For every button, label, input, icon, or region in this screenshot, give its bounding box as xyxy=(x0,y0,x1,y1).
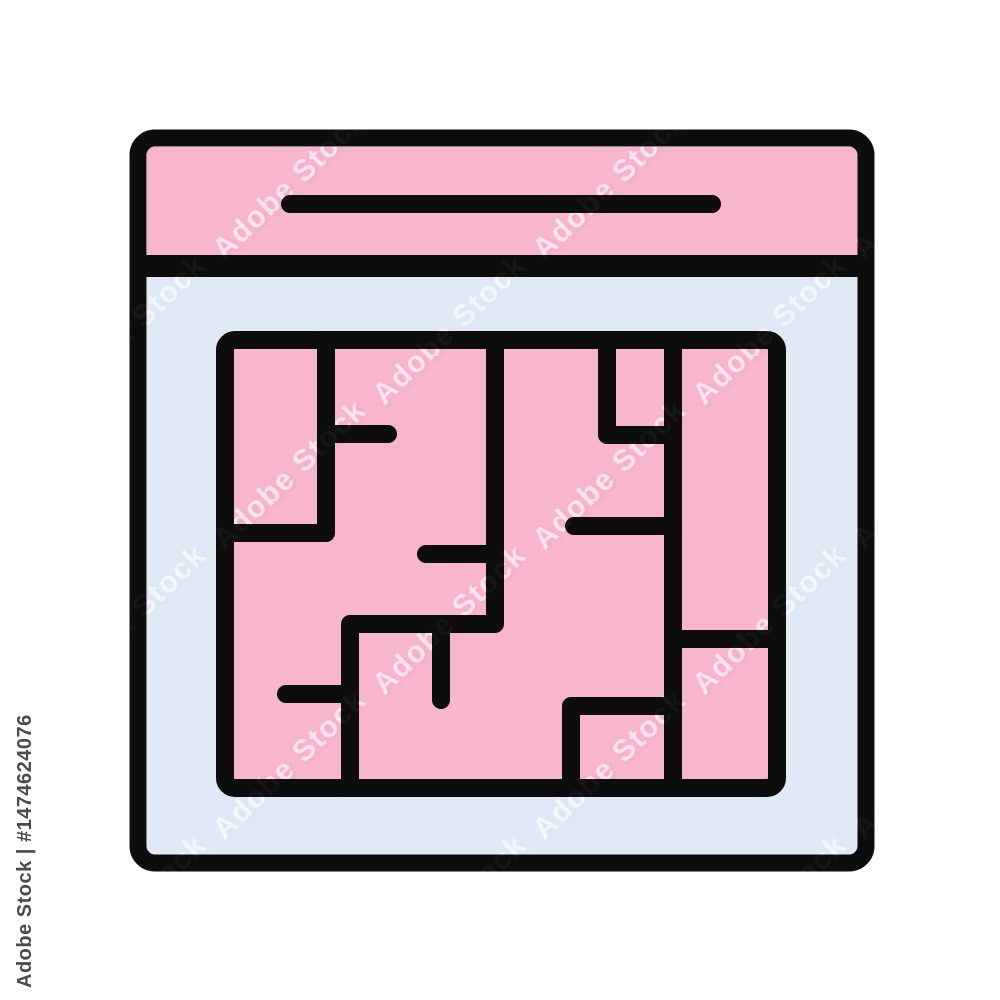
browser-header-divider xyxy=(140,255,864,277)
stock-id-label: Adobe Stock | #1474624076 xyxy=(14,714,37,988)
stock-image-canvas: Adobe StockAdobe StockAdobe StockAdobe S… xyxy=(0,0,1000,1000)
browser-maze-icon xyxy=(0,0,1000,1000)
